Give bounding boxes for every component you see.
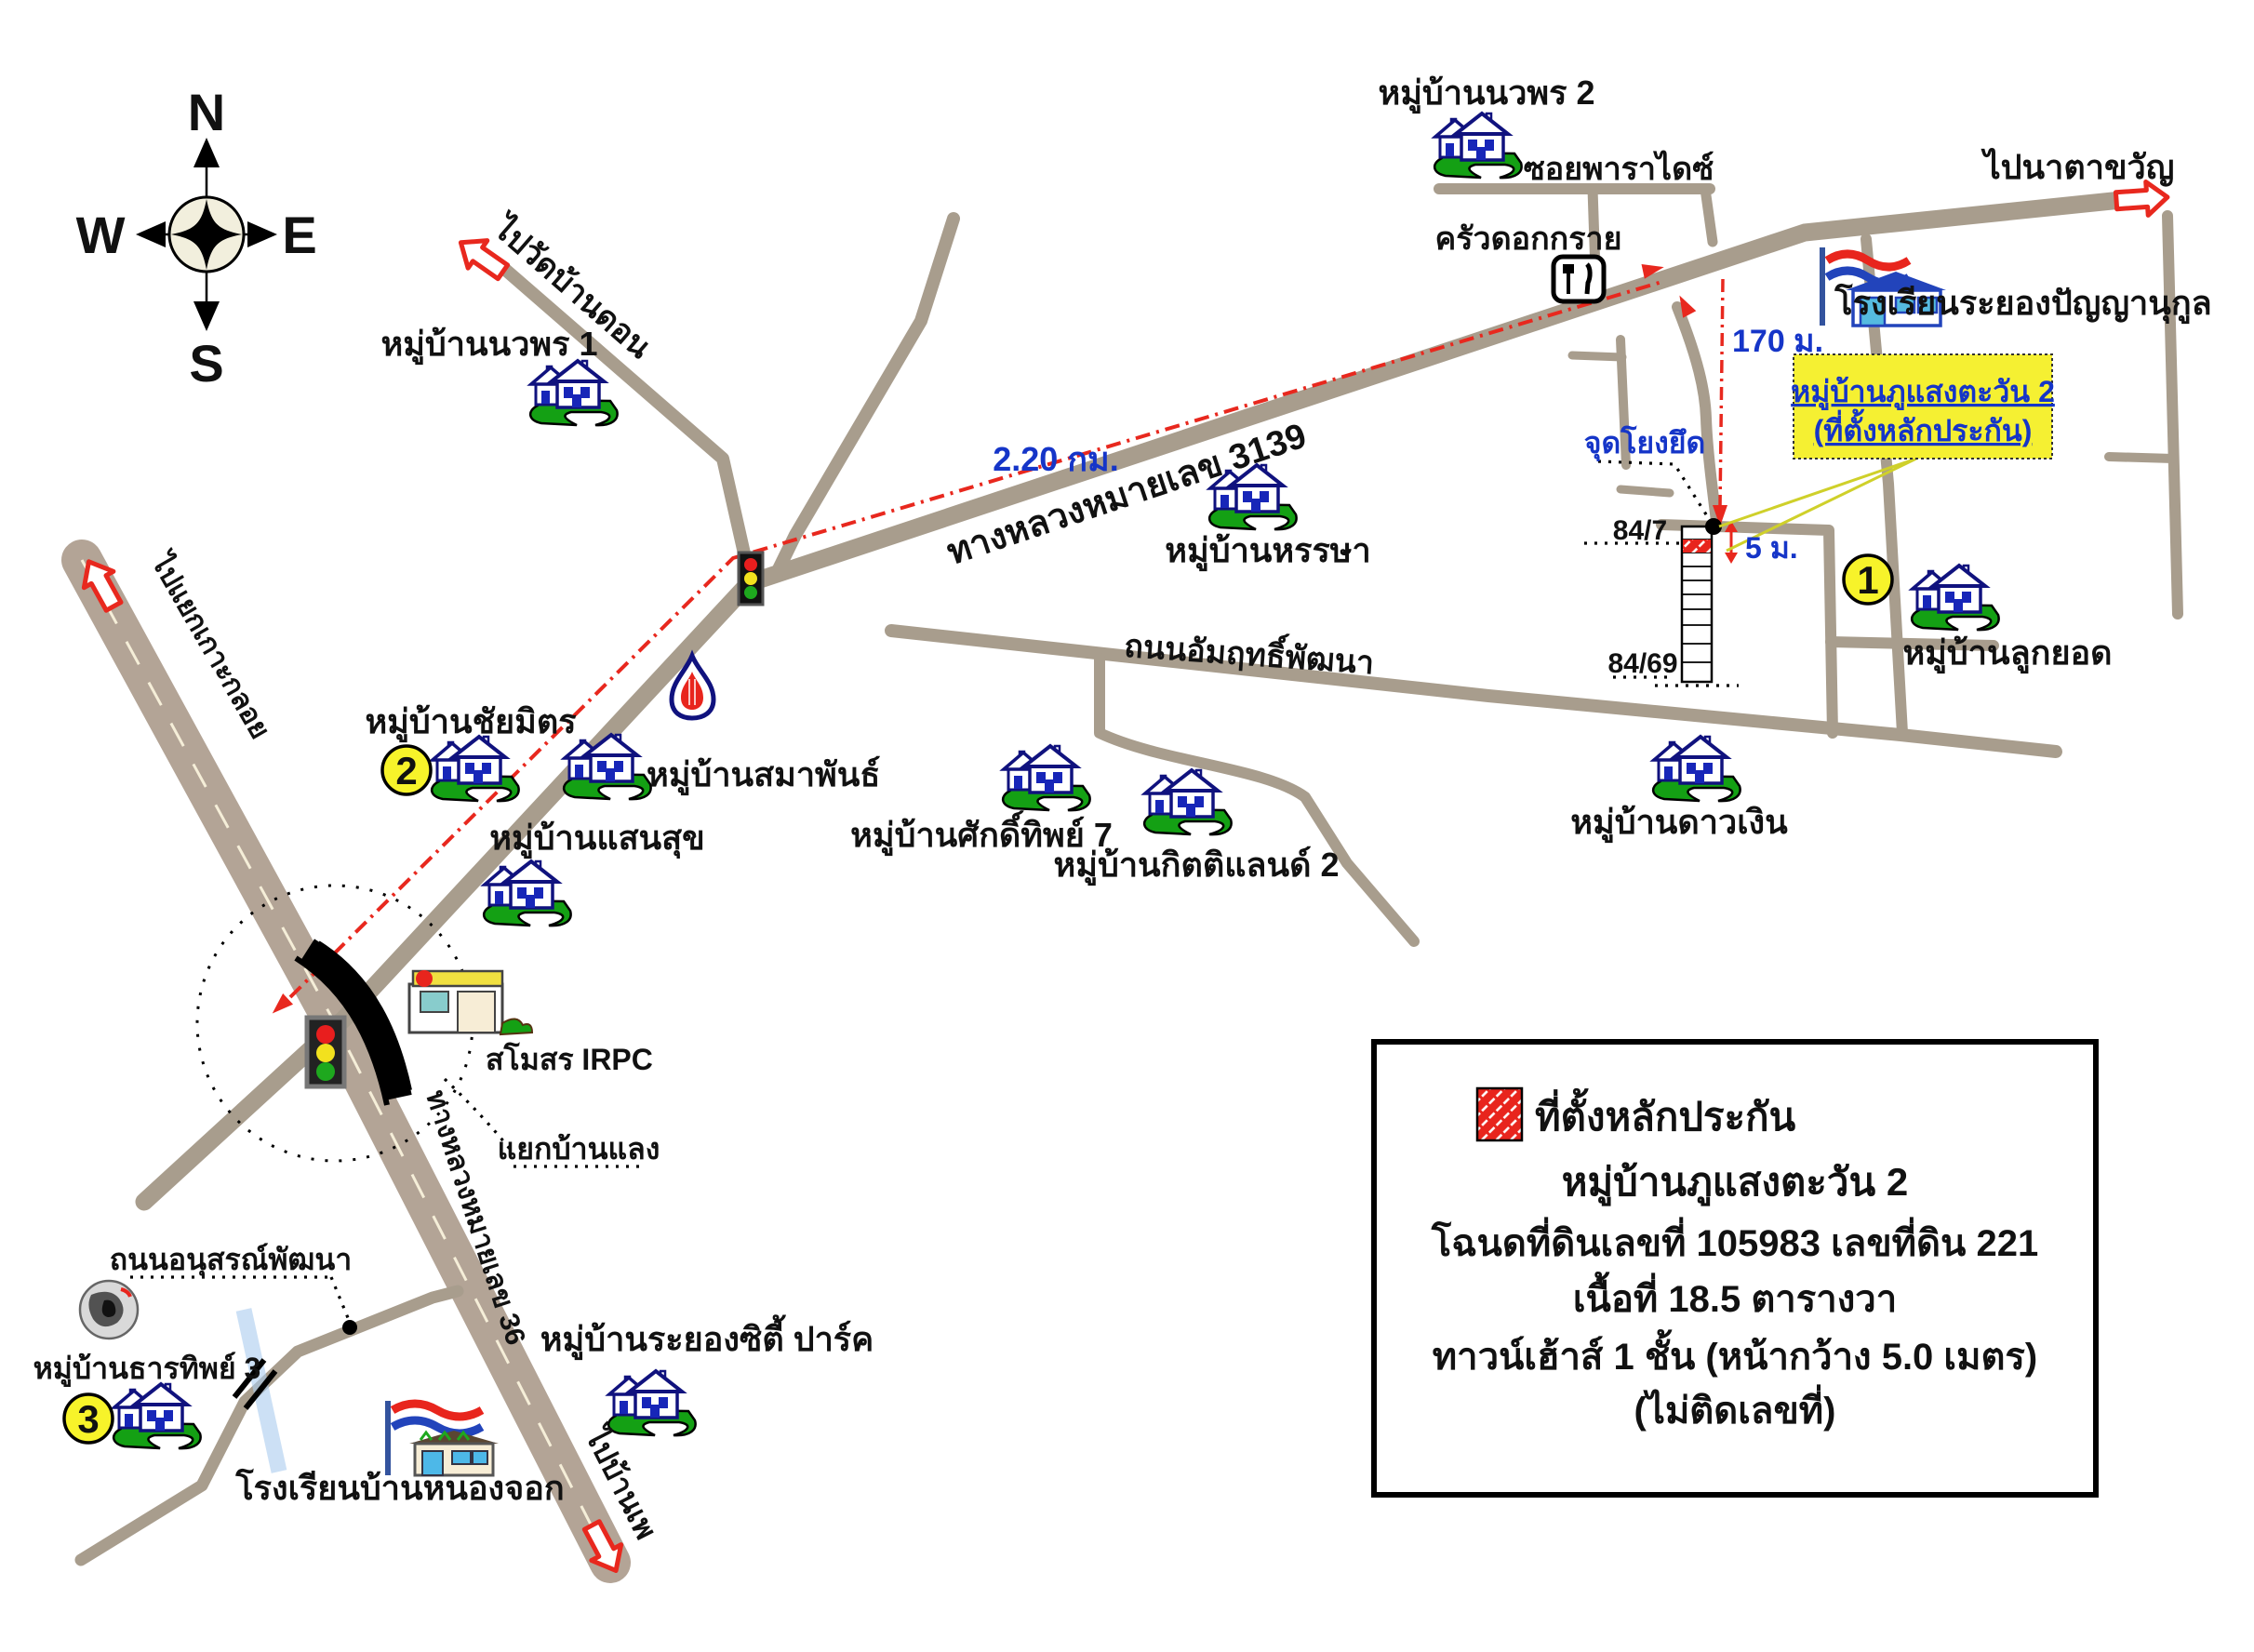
road-property-lane xyxy=(1677,307,1716,521)
village-label-daongoen: หมู่บ้านดาวเงิน xyxy=(1570,803,1788,844)
village-label-samaphan: หมู่บ้านสมาพันธ์ xyxy=(647,755,880,796)
village-houses-icon xyxy=(113,1384,200,1448)
badge-1: 1 xyxy=(1844,555,1892,604)
village-houses-icon xyxy=(484,861,570,926)
village-houses-icon xyxy=(564,735,650,799)
road-label-amrit: ถนนอัมฤทธิ์พัฒนา xyxy=(1123,622,1376,682)
place-label-irpc-club: สโมสร IRPC xyxy=(486,1042,653,1076)
compass-south: S xyxy=(189,334,223,393)
property-label-84-7: 84/7 xyxy=(1613,515,1667,546)
legend-line4: เนื้อที่ 18.5 ตารางวา xyxy=(1573,1272,1897,1320)
measure-label-2-20km: 2.20 กม. xyxy=(993,440,1119,478)
measure-label-5m: 5 ม. xyxy=(1745,531,1798,565)
legend-line3: โฉนดที่ดินเลขที่ 105983 เลขที่ดิน 221 xyxy=(1431,1217,2038,1264)
village-label-nawaporn1: หมู่บ้านนวพร 1 xyxy=(380,325,597,366)
village-houses-icon xyxy=(608,1371,695,1435)
road-label-anusorn: ถนนอนุสรณ์พัฒนา xyxy=(110,1243,352,1279)
legend-line5: ทาวน์เฮ้าส์ 1 ชั้น (หน้ากว้าง 5.0 เมตร) xyxy=(1433,1329,2038,1378)
place-label-yaek-ban-laeng: แยกบ้านแลง xyxy=(498,1132,660,1166)
village-label-chaimit: หมู่บ้านชัยมิตร xyxy=(365,702,577,743)
village-label-saensuk: หมู่บ้านแสนสุข xyxy=(489,819,705,859)
traffic-light-icon xyxy=(739,553,763,605)
badge-2-number: 2 xyxy=(395,749,417,793)
globe-icon xyxy=(80,1281,138,1339)
village-houses-icon xyxy=(530,361,617,425)
badge-3-number: 3 xyxy=(77,1397,99,1441)
village-houses-icon xyxy=(1912,566,1998,630)
route-arrow-icon xyxy=(267,993,293,1019)
village-label-kittiland2: หมู่บ้านกิตติแลนด์ 2 xyxy=(1054,846,1340,886)
village-label-nawaporn2: หมู่บ้านนวพร 2 xyxy=(1378,73,1594,114)
school-flag-icon xyxy=(385,1401,499,1475)
property-label-anchor: จุดโยงยึด xyxy=(1584,425,1706,462)
badge-2: 2 xyxy=(382,746,431,794)
compass-east: E xyxy=(282,206,316,264)
compass-rose: N S W E xyxy=(76,83,317,393)
location-map: หมู่บ้านภูแสงตะวัน 2 (ที่ตั้งหลักประกัน) xyxy=(0,0,2254,1652)
club-building-icon xyxy=(409,970,532,1034)
badge-3: 3 xyxy=(64,1394,113,1443)
legend-line2: หมู่บ้านภูแสงตะวัน 2 xyxy=(1562,1160,1908,1206)
village-label-hansa: หมู่บ้านหรรษา xyxy=(1165,531,1370,572)
collateral-unit-marker xyxy=(1683,540,1711,553)
place-label-krua-dok-krai: ครัวดอกกราย xyxy=(1434,221,1621,257)
destination-label-na-ta-khwan: ไปนาตาขวัญ xyxy=(1981,147,2175,187)
village-houses-icon xyxy=(1434,113,1521,178)
measure-label-170m: 170 ม. xyxy=(1732,324,1823,359)
restaurant-icon xyxy=(1554,257,1604,301)
village-label-rayong-city-park: หมู่บ้านระยองซิตี้ ปาร์ค xyxy=(540,1314,874,1361)
legend-box: ที่ตั้งหลักประกัน หมู่บ้านภูแสงตะวัน 2 โ… xyxy=(1374,1042,2096,1495)
map-canvas: หมู่บ้านภูแสงตะวัน 2 (ที่ตั้งหลักประกัน) xyxy=(0,0,2254,1652)
compass-west: W xyxy=(76,206,126,264)
property-block xyxy=(1682,518,1722,682)
junction-dot xyxy=(342,1320,357,1335)
village-houses-icon xyxy=(1003,746,1089,810)
village-houses-icon xyxy=(1144,770,1231,834)
place-label-school-nongchok: โรงเรียนบ้านหนองจอก xyxy=(234,1468,564,1507)
village-label-thanthip3: หมู่บ้านธารทิพย์ 3 xyxy=(33,1352,261,1388)
property-label-84-69: 84/69 xyxy=(1607,648,1677,679)
badge-1-number: 1 xyxy=(1857,558,1878,602)
place-label-school-panyanukul: โรงเรียนระยองปัญญานุกูล xyxy=(1834,283,2211,325)
legend-line6: (ไม่ติดเลขที่) xyxy=(1634,1384,1836,1432)
road-label-soi-paradise: ซอยพาราไดซ์ xyxy=(1524,150,1714,187)
village-label-lukyod: หมู่บ้านลูกยอด xyxy=(1902,633,2112,674)
traffic-light-icon xyxy=(307,1018,344,1086)
callout-line2: (ที่ตั้งหลักประกัน) xyxy=(1814,408,2033,447)
route-170m-line xyxy=(1720,279,1723,507)
village-houses-icon xyxy=(432,737,518,801)
legend-hatch-swatch xyxy=(1477,1088,1522,1140)
legend-title: ที่ตั้งหลักประกัน xyxy=(1535,1087,1796,1139)
road-amrit xyxy=(891,631,2056,752)
callout-line1: หมู่บ้านภูแสงตะวัน 2 xyxy=(1791,375,2055,411)
compass-north: N xyxy=(188,83,225,141)
village-houses-icon xyxy=(1653,737,1740,801)
